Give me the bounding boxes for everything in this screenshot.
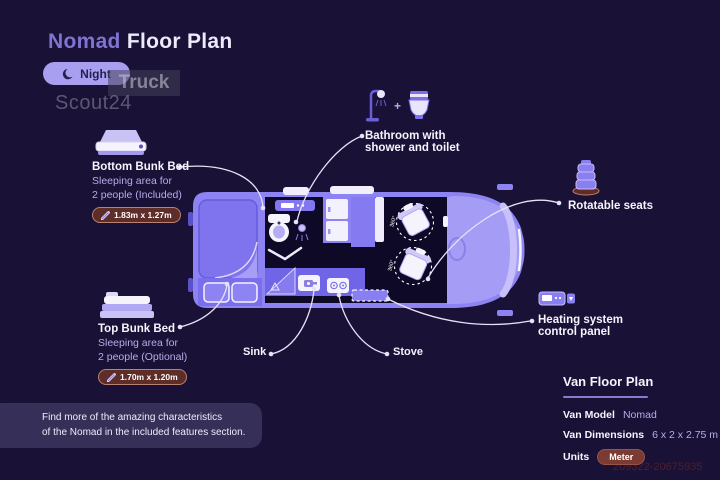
shower-icon: [365, 88, 389, 124]
bed: [199, 200, 257, 278]
dinette-block: [351, 197, 375, 247]
moon-icon: [62, 68, 74, 80]
bottom-bunk-dimensions-badge: 1.83m x 1.27m: [92, 207, 181, 223]
stove-unit: [327, 278, 349, 293]
stove-label: Stove: [393, 346, 423, 358]
top-bunk-desc-2: 2 people (Optional): [98, 351, 187, 365]
cabinet-fridge: [323, 197, 351, 243]
units-label: Units: [563, 451, 589, 463]
bottom-bunk-title: Bottom Bunk Bed: [92, 161, 189, 173]
tall-cabinet: [375, 197, 384, 242]
bathroom-label-1: Bathroom with: [365, 130, 460, 142]
annotation-rotatable-seats: Rotatable seats: [568, 160, 653, 212]
watermark-scout24: Scout24: [55, 92, 132, 115]
van-dimensions-label: Van Dimensions: [563, 429, 644, 441]
van-dimensions-value: 6 x 2 x 2.75 m: [652, 429, 718, 441]
title-model: Nomad: [48, 30, 121, 53]
bottom-bunk-desc-2: 2 people (Included): [92, 189, 189, 203]
sink-unit: [298, 275, 320, 291]
top-bunk-dimensions-badge: 1.70m x 1.20m: [98, 369, 187, 385]
info-panel-divider: [563, 396, 648, 398]
roof-vent-1: [283, 187, 309, 195]
toilet-icon: [406, 90, 432, 122]
plus-sign: +: [394, 99, 401, 113]
van-model-label: Van Model: [563, 409, 615, 421]
annotation-heating: Heating system control panel: [538, 291, 623, 338]
night-toggle-label: Night: [80, 67, 111, 81]
info-row-units: UnitsMeter: [563, 449, 718, 465]
top-bunk-title: Top Bunk Bed: [98, 323, 187, 335]
mirror-bottom: [497, 310, 513, 316]
van-model-value: Nomad: [623, 409, 657, 421]
units-toggle-button[interactable]: Meter: [597, 449, 645, 465]
info-row-dimensions: Van Dimensions6 x 2 x 2.75 m: [563, 429, 718, 441]
bunk-bed-icon: [92, 126, 150, 158]
heating-label-1: Heating system: [538, 314, 623, 326]
top-bunk-dimensions: 1.70m x 1.20m: [120, 372, 178, 382]
door-handle: [443, 216, 448, 227]
info-panel-title: Van Floor Plan: [563, 374, 718, 389]
rear-nub-bottom: [188, 278, 193, 292]
bathroom-label-2: shower and toilet: [365, 142, 460, 154]
heating-label-2: control panel: [538, 326, 623, 338]
annotation-bathroom: + Bathroom with shower and toilet: [365, 88, 460, 154]
footer-note: Find more of the amazing characteristics…: [0, 403, 262, 448]
heating-control-icon: [538, 291, 576, 307]
footer-note-line-2: of the Nomad in the included features se…: [42, 426, 262, 441]
bench-cushion-1: [204, 283, 229, 302]
rotatable-seats-label: Rotatable seats: [568, 200, 653, 212]
toilet: [268, 214, 290, 242]
bottom-bunk-desc-1: Sleeping area for: [92, 175, 189, 189]
ruler-icon: [107, 373, 116, 382]
roof-vent-2: [330, 186, 374, 194]
bottom-bunk-dimensions: 1.83m x 1.27m: [114, 210, 172, 220]
footer-note-line-1: Find more of the amazing characteristics: [42, 411, 262, 426]
mirror-top: [497, 184, 513, 190]
entry-step: [352, 290, 388, 301]
annotation-bottom-bunk: Bottom Bunk Bed Sleeping area for 2 peop…: [92, 126, 189, 225]
sink-label: Sink: [243, 346, 266, 358]
bench-cushion-2: [232, 283, 257, 302]
title-rest: Floor Plan: [127, 30, 233, 53]
floor-plan-page: Nomad Floor Plan Night Truck Scout24: [0, 0, 720, 480]
top-bunk-bed-icon: [98, 290, 156, 320]
van-info-panel: Van Floor Plan Van ModelNomad Van Dimens…: [563, 374, 718, 473]
van-floor-plan: 360° 360°: [185, 182, 535, 322]
page-title: Nomad Floor Plan: [48, 30, 233, 54]
info-row-model: Van ModelNomad: [563, 409, 718, 421]
ruler-icon: [101, 211, 110, 220]
top-bunk-desc-1: Sleeping area for: [98, 337, 187, 351]
annotation-top-bunk: Top Bunk Bed Sleeping area for 2 people …: [98, 290, 187, 387]
rotatable-seat-icon: [570, 160, 602, 196]
